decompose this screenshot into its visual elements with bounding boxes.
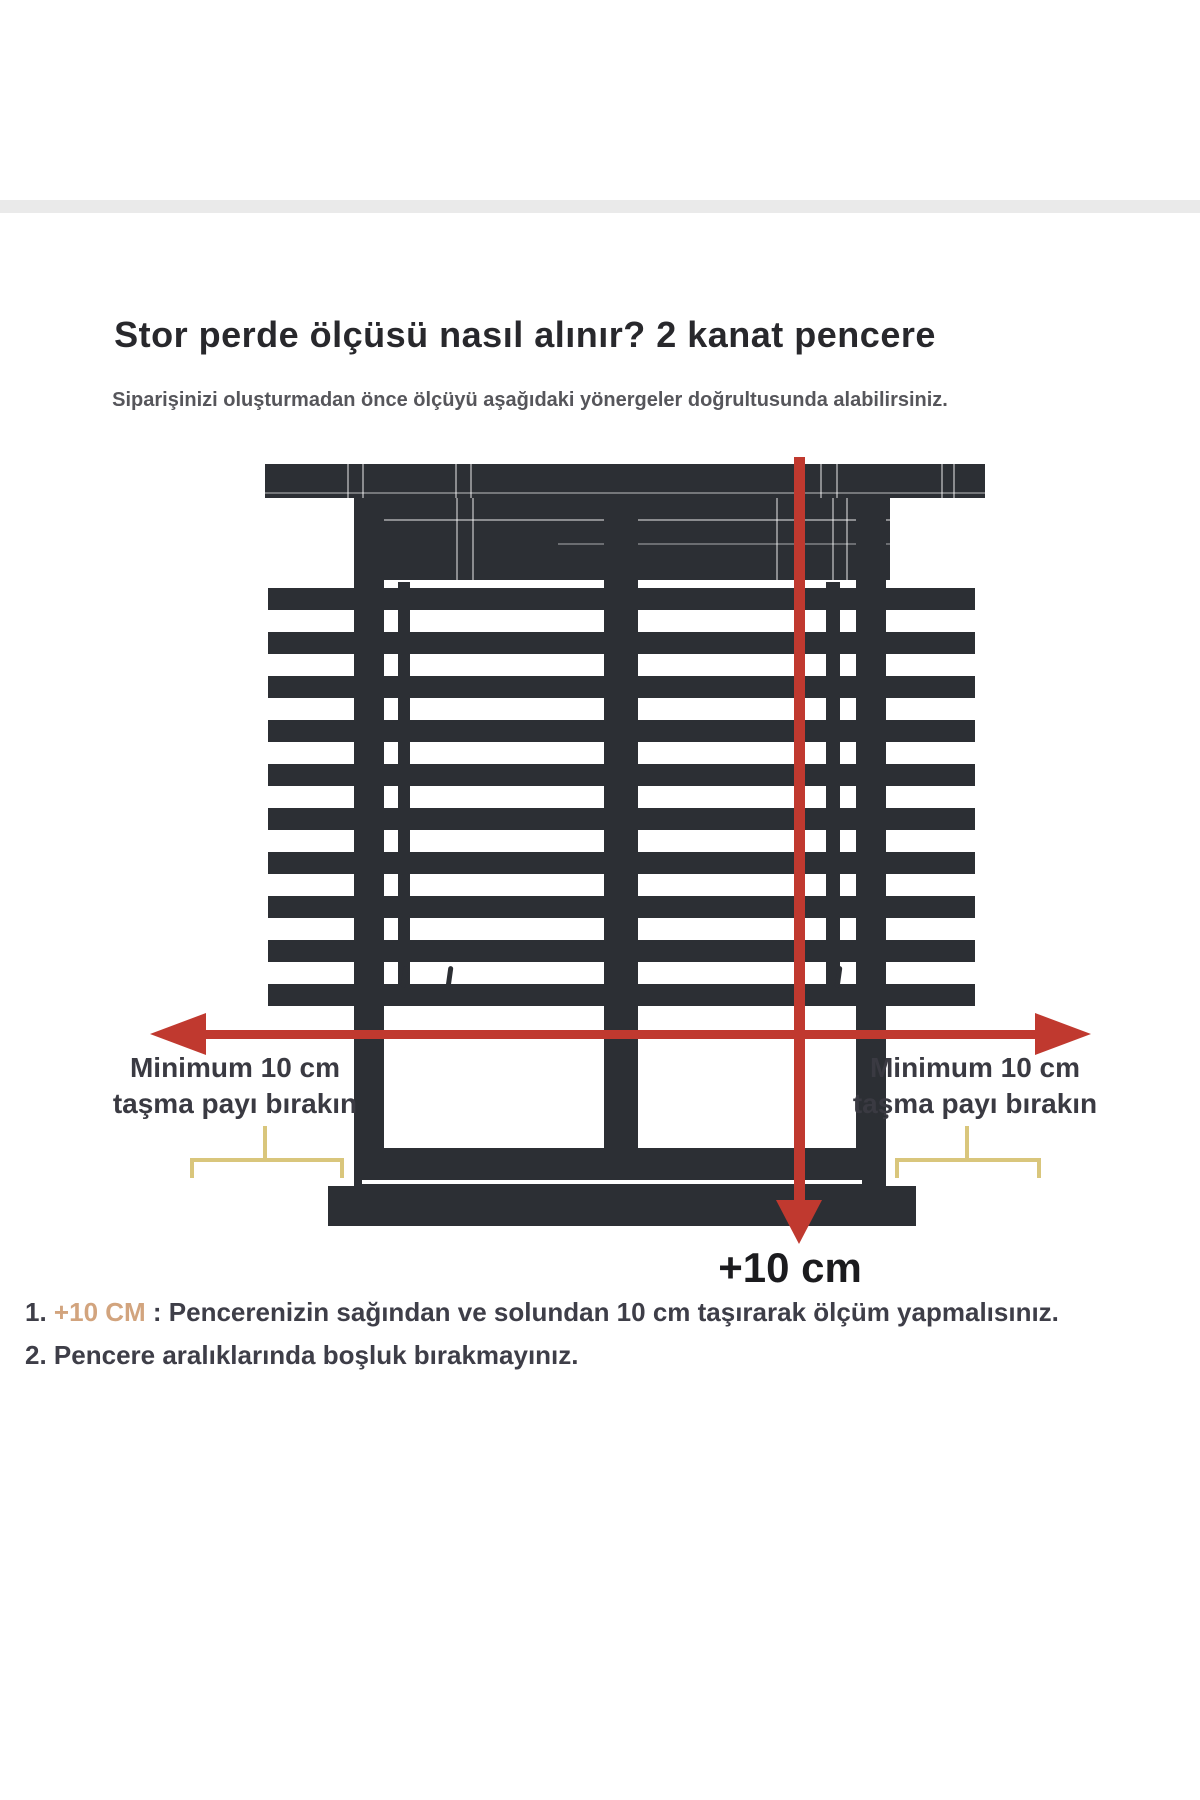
valance-seam xyxy=(820,464,822,498)
note-1-number: 1. xyxy=(25,1297,54,1327)
valance-seam xyxy=(362,464,364,498)
note-2-number: 2. xyxy=(25,1340,54,1370)
left-overhang-label-line2: taşma payı bırakın xyxy=(93,1086,377,1122)
overhang-bracket-left xyxy=(263,1126,267,1160)
note-1-highlight: +10 CM xyxy=(54,1297,146,1327)
stack-seam xyxy=(472,498,474,580)
rail-sill-gap xyxy=(362,1180,862,1184)
blind-slats xyxy=(268,588,975,1006)
page-subtitle: Siparişinizi oluşturmadan önce ölçüyü aş… xyxy=(35,389,1025,412)
overhang-bracket-right xyxy=(895,1158,1041,1162)
note-line-2: 2. Pencere aralıklarında boşluk bırakmay… xyxy=(25,1340,579,1371)
stack-seam xyxy=(776,498,778,580)
overhang-bracket-left xyxy=(190,1162,194,1178)
note-2-text: Pencere aralıklarında boşluk bırakmayını… xyxy=(54,1340,579,1370)
overhang-bracket-right xyxy=(895,1162,899,1178)
stack-seam xyxy=(846,498,848,580)
infographic-page: Stor perde ölçüsü nasıl alınır? 2 kanat … xyxy=(0,0,1200,1800)
valance-seam xyxy=(455,464,457,498)
valance-seam xyxy=(836,464,838,498)
valance-seam xyxy=(347,464,349,498)
overhang-bracket-right xyxy=(1037,1162,1041,1178)
note-1-text: : Pencerenizin sağından ve solundan 10 c… xyxy=(146,1297,1059,1327)
right-overhang-label-line2: taşma payı bırakın xyxy=(833,1086,1117,1122)
note-line-1: 1. +10 CM : Pencerenizin sağından ve sol… xyxy=(25,1297,1059,1328)
window-sill xyxy=(328,1186,916,1226)
left-overhang-label: Minimum 10 cm taşma payı bırakın xyxy=(93,1050,377,1122)
blind-valance xyxy=(265,464,985,498)
top-divider-band xyxy=(0,200,1200,213)
width-arrow-left-icon xyxy=(150,1013,206,1055)
valance-seam xyxy=(941,464,943,498)
page-title: Stor perde ölçüsü nasıl alınır? 2 kanat … xyxy=(20,314,1030,356)
height-measure-line xyxy=(794,457,805,1202)
width-measure-line xyxy=(205,1030,1037,1039)
overhang-bracket-left xyxy=(340,1162,344,1178)
height-arrow-down-icon xyxy=(776,1200,822,1244)
left-overhang-label-line1: Minimum 10 cm xyxy=(93,1050,377,1086)
valance-highlight-line xyxy=(265,492,985,494)
stack-seam xyxy=(456,498,458,580)
overhang-bracket-right xyxy=(965,1126,969,1160)
stack-seam xyxy=(832,498,834,580)
valance-seam xyxy=(953,464,955,498)
valance-seam xyxy=(470,464,472,498)
right-overhang-label-line1: Minimum 10 cm xyxy=(833,1050,1117,1086)
right-overhang-label: Minimum 10 cm taşma payı bırakın xyxy=(833,1050,1117,1122)
width-arrow-right-icon xyxy=(1035,1013,1091,1055)
height-extension-label: +10 cm xyxy=(670,1244,910,1292)
overhang-bracket-left xyxy=(190,1158,344,1162)
